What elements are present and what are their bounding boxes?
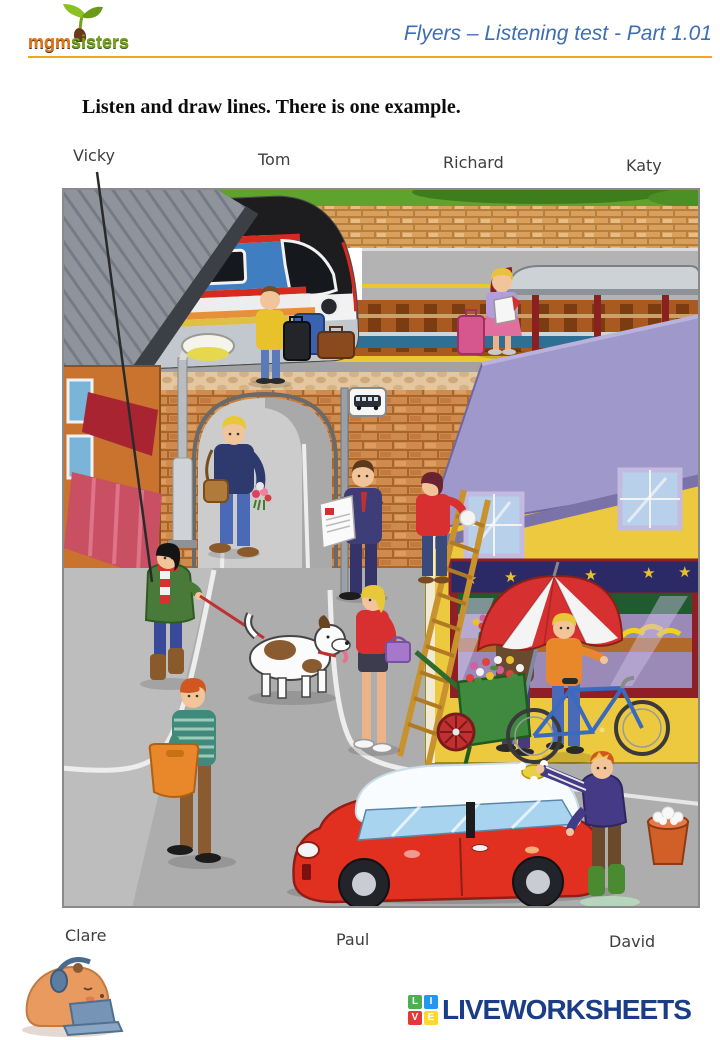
logo-text-mgm: mgm (28, 32, 71, 52)
instruction-text: Listen and draw lines. There is one exam… (82, 96, 461, 119)
liveworksheets-brand: LIVEWORKSHEETS (442, 994, 691, 1026)
liveworksheets-logo: L I V E LIVEWORKSHEETS (408, 994, 691, 1026)
bucket (648, 807, 688, 864)
name-label-paul[interactable]: Paul (336, 930, 369, 949)
logo-tile-l: L (408, 995, 422, 1009)
mgmsisters-logo: mgmsisters (28, 2, 168, 54)
logo-tile-e: E (424, 1011, 438, 1025)
svg-text:★: ★ (678, 563, 691, 581)
street-scene-illustration: ★★ ★★ ★ (62, 188, 700, 908)
logo-tile-i: I (424, 995, 438, 1009)
name-label-david[interactable]: David (609, 932, 655, 951)
name-label-vicky[interactable]: Vicky (73, 146, 115, 165)
svg-text:★: ★ (642, 564, 655, 582)
logo-tile-v: V (408, 1011, 422, 1025)
worksheet-picture[interactable]: ★★ ★★ ★ (62, 188, 700, 908)
logo-text-sisters: sisters (71, 32, 129, 52)
name-label-tom[interactable]: Tom (258, 150, 290, 169)
svg-text:★: ★ (504, 568, 517, 586)
logo-text: mgmsisters (28, 32, 129, 53)
name-label-katy[interactable]: Katy (626, 156, 662, 175)
capybara-mascot-icon (12, 948, 128, 1038)
pink-suitcase (458, 310, 484, 354)
header-rule (28, 56, 712, 58)
liveworksheets-tiles-icon: L I V E (408, 995, 438, 1025)
worksheet-title: Flyers – Listening test - Part 1.01 (340, 22, 712, 46)
name-label-richard[interactable]: Richard (443, 153, 504, 172)
name-label-clare[interactable]: Clare (65, 926, 107, 945)
